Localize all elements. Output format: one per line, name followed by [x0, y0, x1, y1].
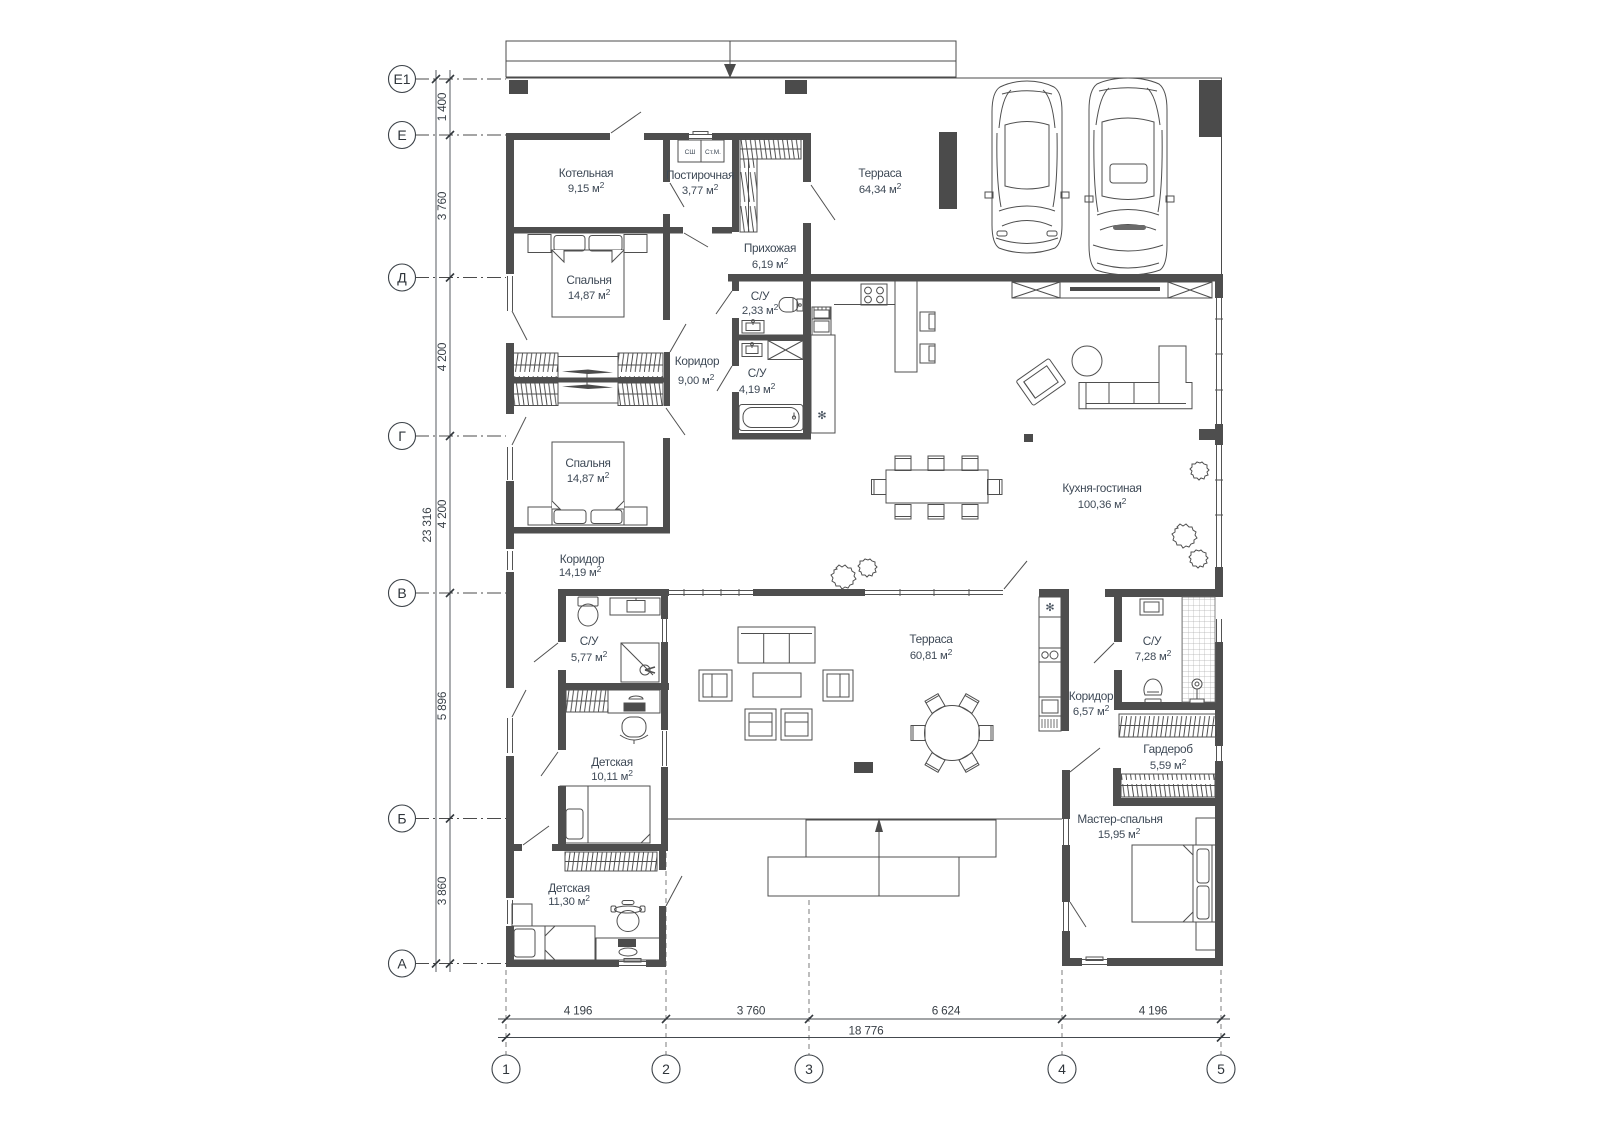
svg-text:6,19 м2: 6,19 м2 — [752, 256, 789, 271]
svg-text:Детская: Детская — [591, 755, 633, 769]
svg-text:Прихожая: Прихожая — [744, 241, 796, 255]
svg-text:Спальня: Спальня — [565, 456, 610, 470]
svg-text:3 760: 3 760 — [435, 191, 449, 220]
svg-text:6,57 м2: 6,57 м2 — [1073, 703, 1110, 718]
svg-text:Коридор: Коридор — [1069, 689, 1114, 703]
svg-text:Постирочная: Постирочная — [666, 168, 734, 182]
svg-text:4 200: 4 200 — [435, 499, 449, 528]
svg-text:15,95 м2: 15,95 м2 — [1098, 826, 1141, 841]
svg-text:3 860: 3 860 — [435, 876, 449, 905]
svg-text:Терраса: Терраса — [909, 632, 953, 646]
svg-text:4 200: 4 200 — [435, 342, 449, 371]
svg-text:9,15 м2: 9,15 м2 — [568, 180, 605, 195]
svg-text:4 196: 4 196 — [1139, 1004, 1168, 1018]
svg-text:4: 4 — [1058, 1061, 1066, 1077]
svg-text:10,11 м2: 10,11 м2 — [591, 768, 633, 783]
svg-text:В: В — [397, 585, 406, 601]
svg-text:С/У: С/У — [751, 289, 770, 303]
svg-text:11,30 м2: 11,30 м2 — [548, 893, 590, 908]
svg-text:18 776: 18 776 — [849, 1024, 885, 1038]
svg-text:✻: ✻ — [817, 410, 826, 422]
svg-text:Терраса: Терраса — [858, 166, 902, 180]
svg-text:С/У: С/У — [580, 634, 599, 648]
svg-text:14,19 м2: 14,19 м2 — [559, 564, 602, 579]
svg-text:3 760: 3 760 — [737, 1004, 766, 1018]
svg-text:Ст.М.: Ст.М. — [705, 149, 721, 156]
svg-text:23 316: 23 316 — [420, 507, 434, 543]
svg-text:3,77 м2: 3,77 м2 — [682, 182, 719, 197]
svg-text:Кухня-гостиная: Кухня-гостиная — [1062, 481, 1141, 495]
svg-text:Спальня: Спальня — [566, 273, 611, 287]
svg-text:Котельная: Котельная — [559, 166, 613, 180]
svg-text:Коридор: Коридор — [675, 354, 720, 368]
svg-text:9,00 м2: 9,00 м2 — [678, 372, 715, 387]
svg-text:14,87 м2: 14,87 м2 — [567, 470, 610, 485]
svg-text:Е: Е — [397, 127, 406, 143]
svg-text:2: 2 — [662, 1061, 670, 1077]
svg-text:64,34 м2: 64,34 м2 — [859, 181, 902, 196]
svg-text:Б: Б — [397, 811, 406, 827]
svg-text:Д: Д — [397, 270, 407, 286]
svg-text:4,19 м2: 4,19 м2 — [739, 381, 776, 396]
svg-text:7,28 м2: 7,28 м2 — [1135, 648, 1172, 663]
svg-text:60,81 м2: 60,81 м2 — [910, 647, 953, 662]
svg-text:Г: Г — [398, 428, 406, 444]
svg-text:Мастер-спальня: Мастер-спальня — [1077, 812, 1162, 826]
svg-text:14,87 м2: 14,87 м2 — [568, 287, 611, 302]
svg-text:5: 5 — [1217, 1061, 1225, 1077]
svg-text:3: 3 — [805, 1061, 813, 1077]
svg-text:А: А — [397, 956, 407, 972]
svg-text:100,36 м2: 100,36 м2 — [1078, 496, 1127, 511]
svg-text:Детская: Детская — [548, 881, 590, 895]
svg-text:6 624: 6 624 — [932, 1004, 961, 1018]
svg-text:1: 1 — [502, 1061, 510, 1077]
svg-text:Гардероб: Гардероб — [1143, 742, 1193, 756]
svg-text:5 896: 5 896 — [435, 691, 449, 720]
svg-text:С/У: С/У — [748, 366, 767, 380]
svg-text:С/У: С/У — [1143, 634, 1162, 648]
svg-text:5,59 м2: 5,59 м2 — [1150, 757, 1187, 772]
svg-text:2,33 м2: 2,33 м2 — [742, 302, 779, 317]
svg-text:✻: ✻ — [1045, 602, 1054, 614]
svg-text:4 196: 4 196 — [564, 1004, 593, 1018]
svg-text:1 400: 1 400 — [435, 92, 449, 121]
svg-text:Е1: Е1 — [393, 71, 410, 87]
svg-text:5,77 м2: 5,77 м2 — [571, 649, 608, 664]
svg-text:СШ: СШ — [685, 149, 696, 156]
